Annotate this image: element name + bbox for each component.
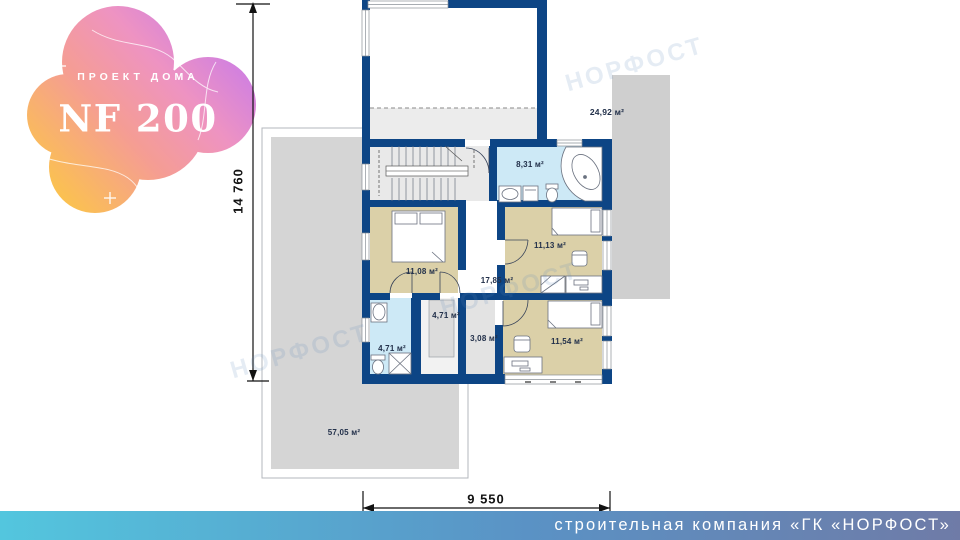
room-label-wardrobe: 4,71 м²	[432, 312, 460, 320]
dimension-label-height: 14 760	[232, 168, 245, 214]
shelf-icon	[541, 276, 565, 293]
desk-icon	[504, 357, 542, 373]
room-label-bedroom-bottom: 11,54 м²	[551, 338, 583, 346]
room-label-bedroom-left: 11,08 м²	[406, 268, 438, 276]
chair-icon	[572, 251, 587, 266]
logo-title: NF 200	[58, 101, 217, 138]
sink-icon	[499, 186, 521, 202]
chair-icon	[514, 336, 530, 352]
dimension-label-width: 9 550	[467, 493, 505, 506]
room-label-hall: 17,85 м²	[481, 277, 513, 285]
washing-machine-icon	[523, 186, 538, 201]
room-label-bedroom-right: 11,13 м²	[534, 242, 566, 250]
presentation-slide: НОРФОСТ НОРФОСТ НОРФОСТ ПРОЕКТ ДОМА NF 2…	[0, 0, 960, 540]
room-label-terrace: 57,05 м²	[328, 429, 360, 437]
bed-icon	[552, 208, 602, 235]
room-label-corridor: 3,08 м²	[470, 335, 498, 343]
desk-icon	[566, 276, 602, 293]
bed-icon	[392, 211, 445, 262]
room-label-bathroom-bottom: 4,71 м²	[378, 345, 406, 353]
sink-icon	[371, 303, 387, 322]
logo-subtitle: ПРОЕКТ ДОМА	[77, 72, 199, 83]
company-name: строительная компания «ГК «НОРФОСТ»	[554, 517, 951, 534]
footer-bar: строительная компания «ГК «НОРФОСТ»	[0, 511, 960, 540]
room-label-bathroom-top: 8,31 м²	[516, 161, 544, 169]
room-label-roof: 24,92 м²	[590, 108, 624, 117]
shower-icon	[389, 353, 411, 374]
toilet-icon	[546, 184, 558, 202]
bed-icon	[548, 301, 602, 328]
